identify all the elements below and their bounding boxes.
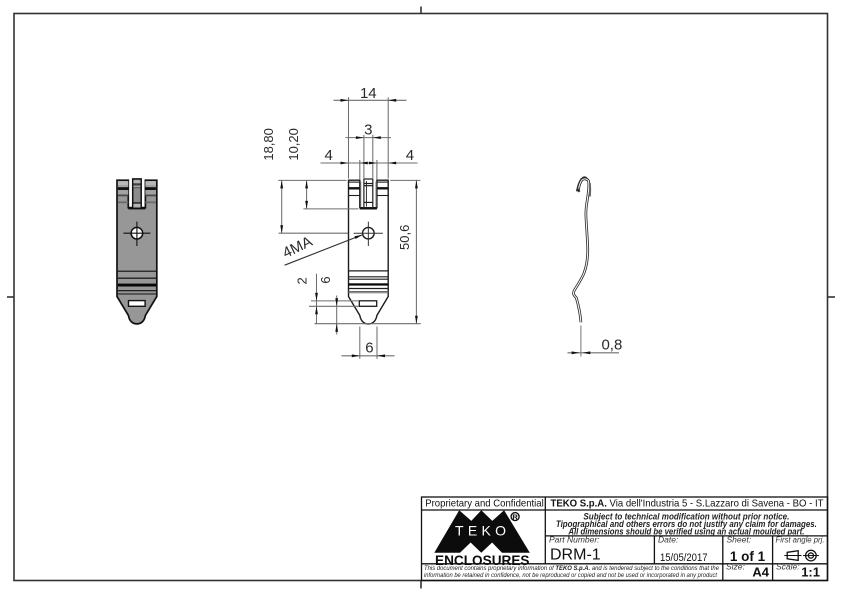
svg-text:DRM-1: DRM-1 bbox=[550, 547, 601, 564]
svg-text:R: R bbox=[512, 512, 518, 521]
svg-text:Scale:: Scale: bbox=[776, 562, 800, 572]
svg-text:18,80: 18,80 bbox=[261, 128, 276, 161]
svg-text:Size:: Size: bbox=[726, 562, 746, 572]
svg-text:ENCLOSURES: ENCLOSURES bbox=[435, 553, 530, 568]
svg-text:Date:: Date: bbox=[658, 535, 679, 545]
svg-text:TEKO: TEKO bbox=[455, 523, 512, 539]
svg-text:14: 14 bbox=[360, 85, 377, 102]
svg-text:Sheet:: Sheet: bbox=[727, 535, 752, 545]
svg-text:Proprietary and Confidential: Proprietary and Confidential bbox=[425, 498, 544, 510]
svg-text:TEKO S.p.A. Via dell'Industria: TEKO S.p.A. Via dell'Industria 5 - S.Laz… bbox=[551, 498, 825, 510]
svg-text:3: 3 bbox=[364, 122, 372, 139]
svg-text:10,20: 10,20 bbox=[286, 128, 301, 161]
svg-text:6: 6 bbox=[318, 276, 333, 283]
svg-text:2: 2 bbox=[295, 277, 310, 284]
svg-text:information be retained in con: information be retained in confidence, n… bbox=[424, 572, 717, 579]
svg-text:All dimensions should be verif: All dimensions should be verified using … bbox=[568, 527, 805, 538]
svg-text:First angle prj.: First angle prj. bbox=[776, 536, 825, 545]
svg-text:4MA: 4MA bbox=[280, 233, 315, 262]
svg-text:Part Number:: Part Number: bbox=[549, 535, 600, 545]
svg-text:6: 6 bbox=[365, 340, 373, 357]
svg-text:0,8: 0,8 bbox=[601, 337, 622, 354]
svg-text:A4: A4 bbox=[752, 565, 769, 580]
svg-text:15/05/2017: 15/05/2017 bbox=[660, 552, 708, 564]
svg-text:4: 4 bbox=[406, 147, 414, 164]
svg-text:50,6: 50,6 bbox=[397, 225, 412, 250]
svg-text:4: 4 bbox=[325, 147, 333, 164]
svg-text:1:1: 1:1 bbox=[801, 565, 820, 580]
